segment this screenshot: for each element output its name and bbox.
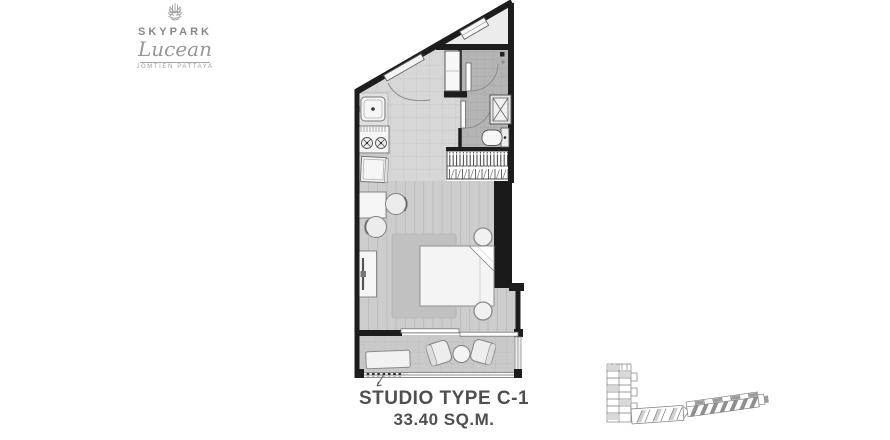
bedside-stool (474, 302, 492, 320)
shower (490, 95, 511, 124)
service-shaft (494, 181, 512, 288)
logo-project-name: Lucean (127, 39, 223, 60)
page: SKYPARK Lucean JOMTIEN PATTAYA (0, 0, 890, 440)
wardrobe (447, 151, 512, 179)
bed (420, 246, 494, 306)
unit-area-label: 33.40 SQ.M. (338, 410, 550, 430)
dining-table (357, 192, 386, 218)
bedside-stool (474, 228, 492, 246)
floor-plan (345, 0, 540, 394)
dining-chair (386, 194, 407, 215)
key-plan-building-left (607, 364, 690, 424)
shower-head (501, 60, 504, 63)
dining-chair (365, 217, 386, 238)
key-plan (598, 356, 783, 436)
ac-ledge (366, 373, 404, 386)
toilet (482, 128, 509, 147)
wall-step (509, 283, 524, 291)
brand-logo: SKYPARK Lucean JOMTIEN PATTAYA (127, 2, 223, 70)
unit-type-title: STUDIO TYPE C-1 (338, 388, 550, 410)
logo-divider (140, 62, 210, 63)
balcony-table (453, 346, 470, 363)
kitchen-sink (358, 97, 386, 121)
skypark-crown-icon (153, 2, 197, 24)
floor-drain (500, 52, 505, 57)
balcony-bench (366, 350, 411, 369)
key-plan-building-right (686, 391, 769, 417)
entry-closet (445, 51, 460, 91)
wall-stub (444, 91, 467, 98)
stove (359, 126, 389, 153)
refrigerator (360, 156, 388, 182)
logo-location-text: JOMTIEN PATTAYA (127, 64, 223, 70)
